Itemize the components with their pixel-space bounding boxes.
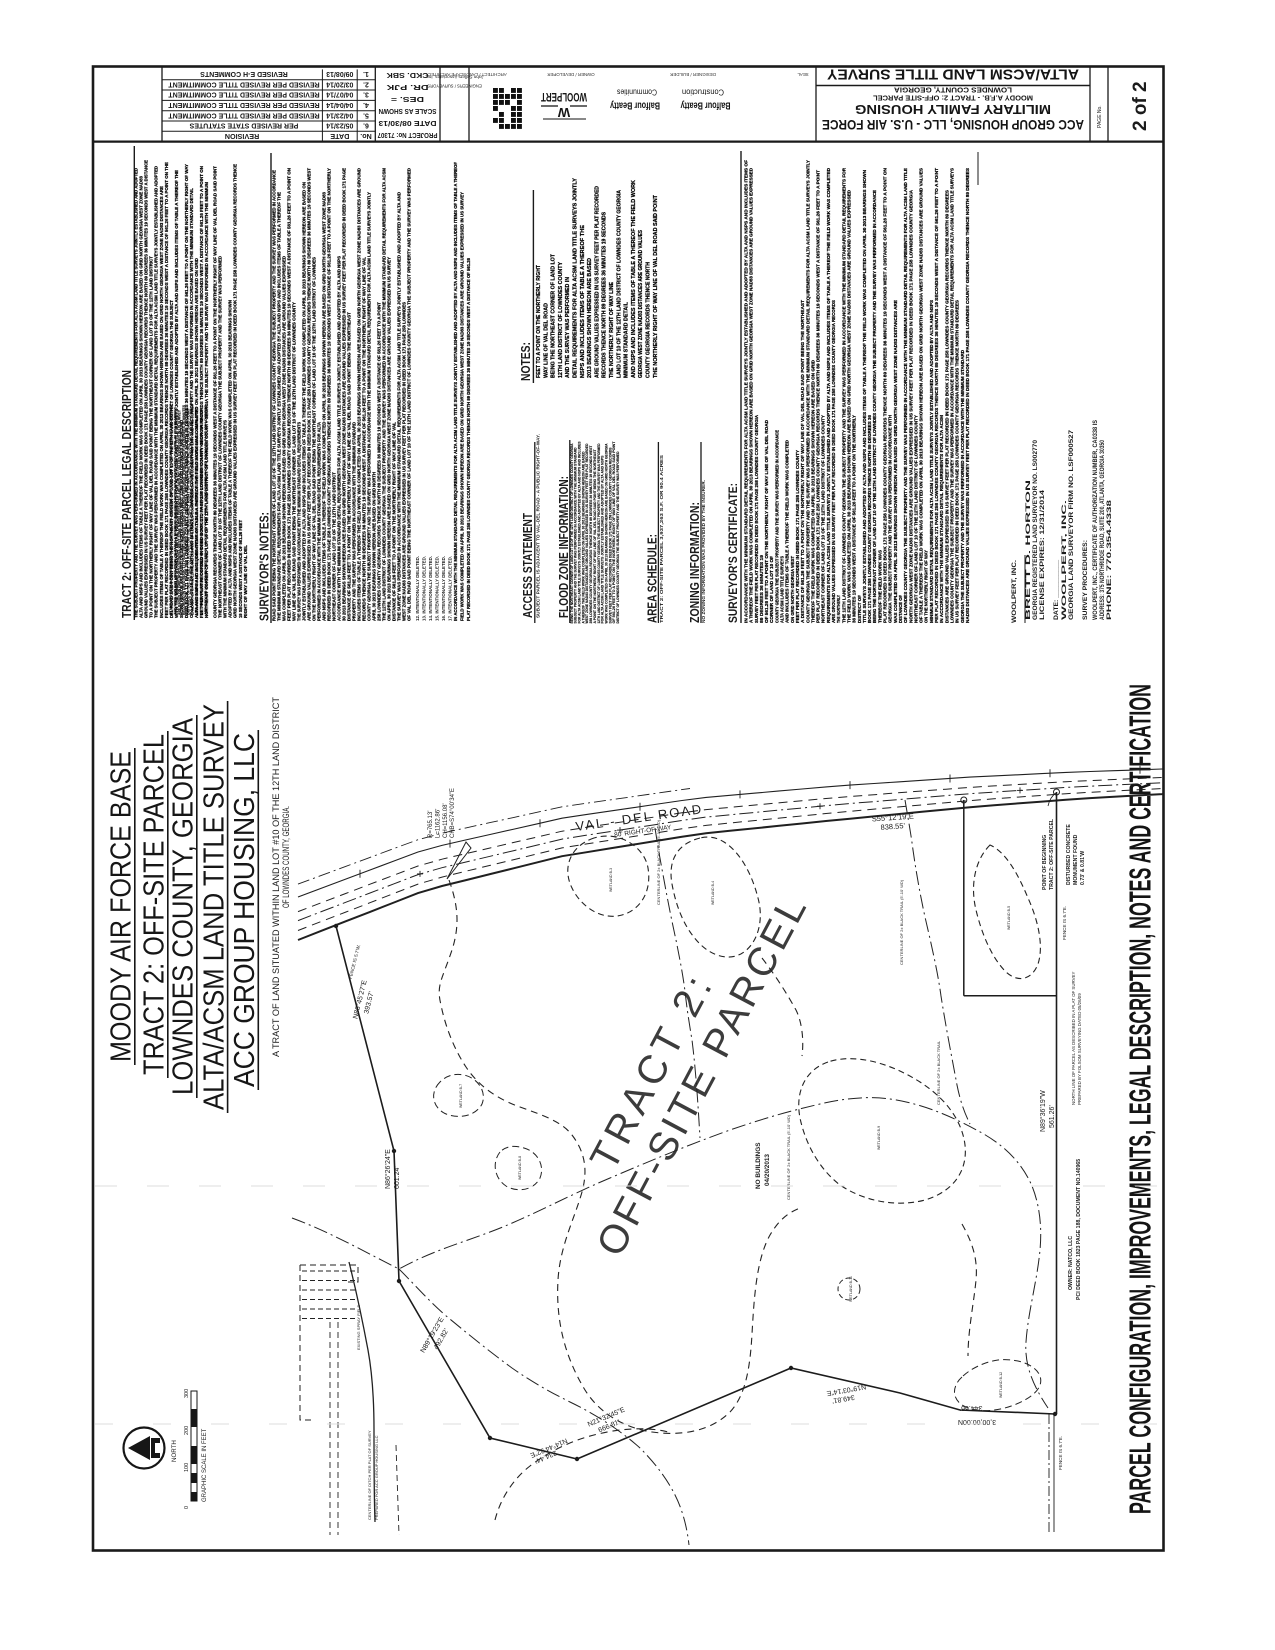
svg-text:WOOLPERT: WOOLPERT (541, 90, 587, 102)
svg-text:05/23/14: 05/23/14 (326, 122, 353, 129)
svg-text:WAS COMPLETED ON APRIL 30 2013: WAS COMPLETED ON APRIL 30 2013 BEARINGS … (893, 300, 898, 623)
svg-text:0: 0 (184, 1506, 190, 1509)
svg-text:LOWNDES COUNTY, GEORGIA: LOWNDES COUNTY, GEORGIA (893, 85, 1012, 94)
svg-text:REVISED PER REVISED TITLE COMM: REVISED PER REVISED TITLE COMMITMENT (168, 91, 320, 98)
svg-text:PLAT RECORDED IN DEED BOOK 171: PLAT RECORDED IN DEED BOOK 171 PAGE 258 … (466, 257, 471, 621)
svg-text:0.73' & 0.81'W: 0.73' & 0.81'W (1080, 851, 1086, 885)
svg-text:CKD. SBK: CKD. SBK (387, 71, 429, 78)
svg-text:4.: 4. (363, 101, 369, 108)
svg-text:DATE: DATE (330, 132, 349, 141)
svg-text:N89°36’19”W: N89°36’19”W (1039, 1090, 1047, 1132)
svg-text:FEET TO A POINT ON THE NORTHER: FEET TO A POINT ON THE NORTHERLY RIGHT (536, 264, 542, 378)
svg-text:5.: 5. (363, 111, 369, 118)
svg-text:2.: 2. (363, 80, 369, 87)
svg-text:NOTES:: NOTES: (518, 342, 533, 381)
svg-text:ARE GROUND VALUES EXPRESSED IN: ARE GROUND VALUES EXPRESSED IN US SURVEY… (831, 300, 836, 623)
svg-text:L=1162.86’: L=1162.86’ (435, 809, 441, 838)
svg-text:ADDRESS: 375 NORTHRIDGE ROAD,: ADDRESS: 375 NORTHRIDGE ROAD, SUITE 200,… (1099, 440, 1106, 620)
svg-text:AND NSPS AND INCLUDES ITEMS OF: AND NSPS AND INCLUDES ITEMS OF TABLE A T… (631, 180, 637, 378)
svg-text:3.: 3. (363, 91, 369, 98)
svg-text:04/04/14: 04/04/14 (326, 101, 353, 108)
svg-text:PER REVISED STATE STATUTES: PER REVISED STATE STATUTES (189, 122, 298, 129)
svg-text:PCI DEED BOOK 1823 PAGE 188, D: PCI DEED BOOK 1823 PAGE 188, DOCUMENT NO… (1076, 1159, 1082, 1300)
svg-text:OWNER: NATCO, LLC: OWNER: NATCO, LLC (1068, 1236, 1074, 1290)
svg-text:15. INTENTIONALLY DELETED.: 15. INTENTIONALLY DELETED. (435, 556, 440, 621)
svg-text:WETLAND B-9: WETLAND B-9 (877, 1126, 881, 1150)
svg-text:NSPS AND INCLUDES ITEMS OF TAB: NSPS AND INCLUDES ITEMS OF TABLE A THERE… (580, 225, 586, 378)
svg-text:COUNTY GEORGIA RECORDS THENCE: COUNTY GEORGIA RECORDS THENCE NORTH (646, 262, 652, 378)
svg-text:IN ACCORDANCE WITH THE MINIMUM: IN ACCORDANCE WITH THE MINIMUM STANDARD … (453, 162, 458, 621)
svg-text:CENTERLINE OF 2± BLACK TRAIL (: CENTERLINE OF 2± BLACK TRAIL (5'-10' WD) (656, 819, 661, 905)
svg-text:WETLAND B-11: WETLAND B-11 (849, 1276, 853, 1302)
svg-text:2 of 2: 2 of 2 (1130, 81, 1151, 131)
svg-text:OF LOWNDES COUNTY, GEORGIA.: OF LOWNDES COUNTY, GEORGIA. (281, 806, 291, 908)
svg-text:CHB=S74°00’34”E: CHB=S74°00’34”E (450, 788, 456, 838)
svg-text:WETLAND B-12: WETLAND B-12 (999, 1372, 1003, 1398)
svg-text:Construction: Construction (682, 88, 724, 97)
svg-text:03/20/14: 03/20/14 (326, 80, 353, 87)
svg-text:PAGE No.: PAGE No. (1097, 105, 1103, 128)
svg-text:FIELD WORK WAS COMPLETED ON AP: FIELD WORK WAS COMPLETED ON APRIL 30 201… (460, 192, 465, 621)
svg-text:36 MINUTES 19 SECONDS WEST A D: 36 MINUTES 19 SECONDS WEST A DISTANCE OF… (852, 415, 857, 623)
svg-text:R=765.13’: R=765.13’ (428, 810, 434, 838)
svg-text:12TH LAND DISTRICT OF LOWNDES: 12TH LAND DISTRICT OF LOWNDES COUNTY (558, 262, 564, 378)
svg-text:SURVEYOR'S NOTES:: SURVEYOR'S NOTES: (258, 512, 272, 621)
svg-text:PHONE: 770.354.4338: PHONE: 770.354.4338 (1106, 499, 1113, 620)
svg-text:ACC GROUP HOUSING, LLC: ACC GROUP HOUSING, LLC (229, 733, 261, 1087)
svg-text:100: 100 (184, 1463, 190, 1472)
svg-text:MOODY AIR FORCE BASE: MOODY AIR FORCE BASE (106, 751, 138, 1062)
svg-text:GEORGIA WEST ZONE NAD83 DISTAN: GEORGIA WEST ZONE NAD83 DISTANCES ARE GR… (638, 230, 644, 378)
svg-text:GEORGIA LAND SURVEYOR FIRM NO.: GEORGIA LAND SURVEYOR FIRM NO. LSF000527 (1068, 430, 1075, 620)
svg-text:PARCEL CONFIGURATION, IMPROVEM: PARCEL CONFIGURATION, IMPROVEMENTS, LEGA… (1123, 684, 1158, 1514)
svg-text:BRETT D. HORTON: BRETT D. HORTON (1025, 479, 1032, 620)
svg-text:200: 200 (184, 1426, 190, 1435)
svg-text:ALTA/ACSM LAND TITLE SURVEY: ALTA/ACSM LAND TITLE SURVEY (198, 704, 230, 1110)
svg-text:NORTH: NORTH (171, 1440, 178, 1462)
svg-text:GRAPHIC SCALE IN FEET: GRAPHIC SCALE IN FEET (202, 1428, 208, 1502)
svg-text:CENTERLINE OF 2± BLACK TRAIL (: CENTERLINE OF 2± BLACK TRAIL (5'-10' WD) (899, 879, 904, 965)
svg-text:OF VAL DEL ROAD SAID POINT BEI: OF VAL DEL ROAD SAID POINT BEING THE NOR… (407, 168, 412, 621)
svg-text:04/23/14: 04/23/14 (326, 111, 353, 118)
svg-text:ARE GROUND VALUES EXPRESSED IN: ARE GROUND VALUES EXPRESSED IN US SURVEY… (594, 186, 600, 378)
svg-text:OWNER / DEVELOPER: OWNER / DEVELOPER (547, 72, 594, 77)
svg-text:TRACT 2: OFF-SITE PARCEL: TRACT 2: OFF-SITE PARCEL (139, 734, 171, 1075)
svg-text:WETLAND B-3: WETLAND B-3 (609, 868, 613, 892)
svg-text:RECORDED IN DEED BOOK 171 PAGE: RECORDED IN DEED BOOK 171 PAGE 258 LOWND… (182, 404, 186, 615)
svg-text:SEAL: SEAL (797, 72, 809, 77)
svg-text:NAD83 DISTANCES ARE GROUND VAL: NAD83 DISTANCES ARE GROUND VALUES EXPRES… (965, 168, 970, 623)
svg-text:LOWNDES COUNTY, GEORGIA: LOWNDES COUNTY, GEORGIA (168, 717, 200, 1095)
svg-text:DATE 08/30/13: DATE 08/30/13 (378, 119, 436, 126)
svg-text:REVISION: REVISION (225, 132, 259, 141)
svg-text:SUBJECT PARCEL IS ADJACENT TO: SUBJECT PARCEL IS ADJACENT TO VAL-DEL RO… (536, 433, 542, 618)
svg-text:04/20/2013: 04/20/2013 (764, 1154, 771, 1186)
svg-text:16. INTENTIONALLY DELETED.: 16. INTENTIONALLY DELETED. (441, 556, 446, 621)
svg-text:1.: 1. (363, 70, 369, 77)
svg-text:ALTA/ACSM LAND TITLE SURVEY: ALTA/ACSM LAND TITLE SURVEY (827, 66, 1079, 83)
svg-text:EXISTING SPRAY FIELD: EXISTING SPRAY FIELD (356, 1304, 361, 1350)
svg-text:SCALE AS SHOWN: SCALE AS SHOWN (379, 107, 437, 114)
svg-text:TRACT 2: OFF-SITE PARCEL LEGAL: TRACT 2: OFF-SITE PARCEL LEGAL DESCRIPTI… (120, 370, 134, 618)
svg-text:SURVEY PROCEDURES:: SURVEY PROCEDURES: (1082, 540, 1089, 620)
svg-text:RIGHT OF WAY LINE OF VAL DEL: RIGHT OF WAY LINE OF VAL DEL (243, 545, 248, 618)
svg-text:No.: No. (360, 132, 372, 141)
svg-text:WETLAND B-4: WETLAND B-4 (711, 881, 715, 905)
svg-text:DATE: __________: DATE: __________ (1053, 560, 1060, 620)
svg-text:Balfour Beatty: Balfour Beatty (610, 100, 660, 112)
svg-text:BEING THE NORTHEAST CORNER OF: BEING THE NORTHEAST CORNER OF LAND LOT (551, 253, 557, 378)
svg-text:LAND LOT 10 OF THE 12TH LAND D: LAND LOT 10 OF THE 12TH LAND DISTRICT OF… (191, 403, 195, 615)
svg-text:DETAIL REQUIREMENTS FOR ALTA A: DETAIL REQUIREMENTS FOR ALTA ACSM LAND T… (573, 178, 579, 378)
svg-text:NO ZONING INFORMATION WAS PROV: NO ZONING INFORMATION WAS PROVIDED BY TH… (701, 480, 706, 623)
svg-text:REVISED PER REVISED TITLE COMM: REVISED PER REVISED TITLE COMMITMENT (168, 80, 320, 87)
svg-text:GEORGIA REGISTERED LAND SURVEY: GEORGIA REGISTERED LAND SURVEYOR NO. LS0… (1032, 440, 1039, 620)
svg-text:300: 300 (184, 1389, 190, 1398)
svg-text:REVISED PER REVISED TITLE COMM: REVISED PER REVISED TITLE COMMITMENT (168, 111, 320, 118)
svg-text:561.26’: 561.26’ (1049, 1105, 1056, 1128)
svg-text:09/08/13: 09/08/13 (326, 70, 353, 77)
svg-text:ACCESS STATEMENT: ACCESS STATEMENT (521, 513, 535, 618)
svg-text:TRACT 2: OFF-SITE PARCEL: TRACT 2: OFF-SITE PARCEL (1049, 818, 1055, 890)
svg-text:PROJECT No: 71307: PROJECT No: 71307 (377, 131, 437, 138)
svg-text:AND THE SURVEY WAS PERFORMED I: AND THE SURVEY WAS PERFORMED IN (565, 277, 571, 378)
svg-text:CH=1156.08’: CH=1156.08’ (443, 803, 449, 838)
svg-text:ARCHITECT / LANDSCAPE ARCHITEC: ARCHITECT / LANDSCAPE ARCHITECT (425, 72, 507, 77)
svg-text:CENTERLINE OF 2± BLACK TRAIL: CENTERLINE OF 2± BLACK TRAIL (936, 1040, 941, 1105)
svg-text:WETLAND B-5: WETLAND B-5 (1007, 906, 1011, 930)
svg-text:DESIGNER / BUILDER: DESIGNER / BUILDER (670, 72, 716, 77)
svg-text:TRACT 2: OFF-SITE PARCEL: TRACT 2: OFF-SITE PARCEL 3,937,263 S.F. … (659, 454, 665, 623)
svg-text:REVISED E-H COMMENTS: REVISED E-H COMMENTS (200, 70, 288, 77)
svg-text:WOOLPERT, INC.: WOOLPERT, INC. (1061, 500, 1068, 620)
svg-text:DISTURBED CONCRETE: DISTURBED CONCRETE (1066, 824, 1072, 885)
svg-text:13. INTENTIONALLY DELETED.: 13. INTENTIONALLY DELETED. (422, 556, 427, 621)
svg-text:WETLAND B-8: WETLAND B-8 (518, 1156, 522, 1180)
svg-text:WAY LINE OF VAL DEL ROAD: WAY LINE OF VAL DEL ROAD (543, 303, 549, 378)
svg-text:AREA SCHEDULE:: AREA SCHEDULE: (645, 534, 660, 623)
svg-text:ZONING INFORMATION:: ZONING INFORMATION: (687, 502, 702, 623)
svg-text:WOOLPERT, INC.: WOOLPERT, INC. (1012, 560, 1018, 623)
svg-text:A TRACT OF LAND SITUATED WITHI: A TRACT OF LAND SITUATED WITHIN LAND LOT… (271, 697, 281, 1057)
svg-text:MOODY A.F.B. - TRACT 2: OFF-SI: MOODY A.F.B. - TRACT 2: OFF-SITE PARCEL (873, 94, 1033, 103)
svg-text:THE NORTHERLY RIGHT OF WAY LIN: THE NORTHERLY RIGHT OF WAY LINE (609, 282, 615, 378)
svg-text:MONUMENT FOUND: MONUMENT FOUND (1073, 834, 1079, 885)
svg-text:CENTERLINE OF 2± BLACK TRAIL (: CENTERLINE OF 2± BLACK TRAIL (5'-10' WD) (786, 1114, 791, 1200)
svg-text:NORTH LINE OF PARCEL AS DESCRI: NORTH LINE OF PARCEL AS DESCRIBED IN A P… (1071, 972, 1076, 1105)
svg-text:ENGINEERS / SURVEYORS: ENGINEERS / SURVEYORS (427, 84, 482, 89)
svg-text:N86°26’24”E: N86°26’24”E (384, 1149, 392, 1189)
svg-text:THE NORTHERLY RIGHT OF WAY LIN: THE NORTHERLY RIGHT OF WAY LINE OF VAL D… (653, 194, 659, 378)
svg-text:12. INTENTIONALLY DELETED.: 12. INTENTIONALLY DELETED. (415, 556, 420, 621)
svg-text:838.55’: 838.55’ (880, 821, 906, 832)
svg-text:FENCE IS 6.7'E.: FENCE IS 6.7'E. (1058, 1436, 1063, 1470)
svg-text:601.24’: 601.24’ (394, 1166, 401, 1189)
svg-text:Balfour Beatty: Balfour Beatty (680, 100, 730, 112)
svg-text:2013 BEARINGS SHOWN HEREON ARE: 2013 BEARINGS SHOWN HEREON ARE BASED (587, 258, 593, 378)
svg-text:POINT OF BEGINNING: POINT OF BEGINNING (1042, 835, 1048, 890)
svg-text:LICENSE EXPIRES: 12/31/2014: LICENSE EXPIRES: 12/31/2014 (1039, 489, 1046, 620)
svg-text:SURVEYOR'S CERTIFICATE:: SURVEYOR'S CERTIFICATE: (728, 483, 740, 623)
svg-text:17. INTENTIONALLY DELETED.: 17. INTENTIONALLY DELETED. (448, 556, 453, 621)
svg-text:MINIMUM STANDARD DETAIL: MINIMUM STANDARD DETAIL (624, 301, 630, 378)
svg-text:04/07/14: 04/07/14 (326, 91, 353, 98)
svg-text:NO BUILDINGS: NO BUILDINGS (755, 1142, 762, 1189)
svg-text:DES. =: DES. = (391, 95, 424, 102)
svg-text:Communities: Communities (617, 88, 657, 97)
svg-text:ARE GROUND VALUES EXPRESSED IN: ARE GROUND VALUES EXPRESSED IN US SURVEY… (204, 404, 208, 615)
svg-text:FENCE IS 6.7'E.: FENCE IS 6.7'E. (1062, 906, 1067, 940)
svg-text:CENTERLINE OF DITCH PER PLAT O: CENTERLINE OF DITCH PER PLAT OF SURVEY (367, 1430, 372, 1520)
svg-text:DR. PJK: DR. PJK (387, 83, 429, 90)
svg-text:LAND LOT 10 OF THE 12TH LAND D: LAND LOT 10 OF THE 12TH LAND DISTRICT OF… (616, 190, 622, 378)
svg-text:ACC GROUP HOUSING, LLC - U.S.: ACC GROUP HOUSING, LLC - U.S. AIR FORCE (822, 117, 1084, 133)
svg-text:14. INTENTIONALLY DELETED.: 14. INTENTIONALLY DELETED. (428, 556, 433, 621)
svg-text:PREPARED FOR ACC GROUP HOUSING: PREPARED FOR ACC GROUP HOUSING LLC (374, 1435, 379, 1520)
svg-text:RECORDS THENCE NORTH 89 DEGREE: RECORDS THENCE NORTH 89 DEGREES 36 MINUT… (602, 212, 608, 378)
svg-text:W: W (557, 105, 570, 120)
svg-text:DISTRICT OF LOWNDES COUNTY GEO: DISTRICT OF LOWNDES COUNTY GEORGIA THE S… (616, 451, 620, 624)
svg-text:AND NSPS AND INCLUDES ITEMS OF: AND NSPS AND INCLUDES ITEMS OF TABLE A T… (173, 406, 177, 615)
svg-text:REVISED PER REVISED TITLE COMM: REVISED PER REVISED TITLE COMMITMENT (168, 101, 320, 108)
svg-text:PREPARED BY FOLSOM SURVEYING D: PREPARED BY FOLSOM SURVEYING DATED 05/26… (1077, 993, 1082, 1105)
svg-text:MILITARY FAMILY HOUSING: MILITARY FAMILY HOUSING (855, 102, 1051, 117)
svg-text:WOOLPERT, INC., CERTIFICATE OF: WOOLPERT, INC., CERTIFICATE OF AUTHORIZA… (1092, 419, 1099, 620)
svg-text:6.: 6. (363, 122, 369, 129)
svg-text:OF TABLE A THEREOF THE FIELD W: OF TABLE A THEREOF THE FIELD WORK WAS CO… (199, 410, 203, 615)
svg-text:FLOOD ZONE INFORMATION:: FLOOD ZONE INFORMATION: (556, 476, 571, 618)
svg-text:WETLAND B-7: WETLAND B-7 (459, 1084, 463, 1108)
